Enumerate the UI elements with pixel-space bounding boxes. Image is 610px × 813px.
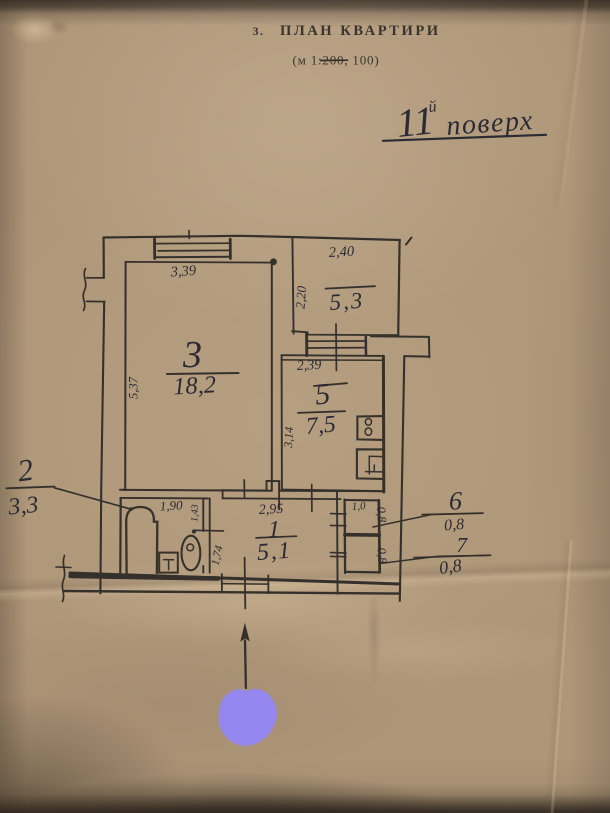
- svg-text:2,40: 2,40: [328, 244, 355, 261]
- svg-text:7,5: 7,5: [305, 411, 337, 440]
- svg-text:0,8: 0,8: [438, 555, 463, 578]
- svg-text:0,8: 0,8: [375, 547, 390, 564]
- svg-text:5: 5: [314, 377, 332, 411]
- svg-text:(м 1:200, 100): (м 1:200, 100): [293, 53, 380, 68]
- svg-text:2,95: 2,95: [258, 502, 283, 518]
- svg-text:5,3: 5,3: [329, 288, 365, 315]
- svg-text:3: 3: [182, 334, 202, 376]
- svg-text:5,1: 5,1: [256, 538, 293, 566]
- svg-text:3,3: 3,3: [6, 492, 39, 521]
- svg-text:ПЛАН КВАРТИРИ: ПЛАН КВАРТИРИ: [280, 23, 441, 39]
- svg-text:поверх: поверх: [445, 105, 534, 142]
- svg-text:1,0: 1,0: [351, 500, 366, 513]
- svg-text:6: 6: [449, 487, 462, 516]
- svg-text:7: 7: [457, 533, 469, 557]
- svg-text:0,8: 0,8: [443, 516, 464, 535]
- svg-text:1,43: 1,43: [190, 504, 202, 522]
- svg-text:2,39: 2,39: [296, 358, 321, 374]
- svg-text:3.: 3.: [253, 24, 265, 38]
- svg-text:2,20: 2,20: [293, 285, 310, 309]
- svg-text:1,90: 1,90: [159, 497, 183, 513]
- svg-text:3,39: 3,39: [169, 263, 197, 281]
- svg-text:1,74: 1,74: [210, 544, 226, 566]
- svg-text:0,8: 0,8: [374, 506, 389, 523]
- svg-text:2: 2: [15, 452, 35, 489]
- svg-text:й: й: [428, 98, 438, 116]
- svg-text:3,14: 3,14: [281, 426, 296, 449]
- svg-text:5,37: 5,37: [127, 376, 141, 399]
- svg-text:18,2: 18,2: [172, 371, 216, 400]
